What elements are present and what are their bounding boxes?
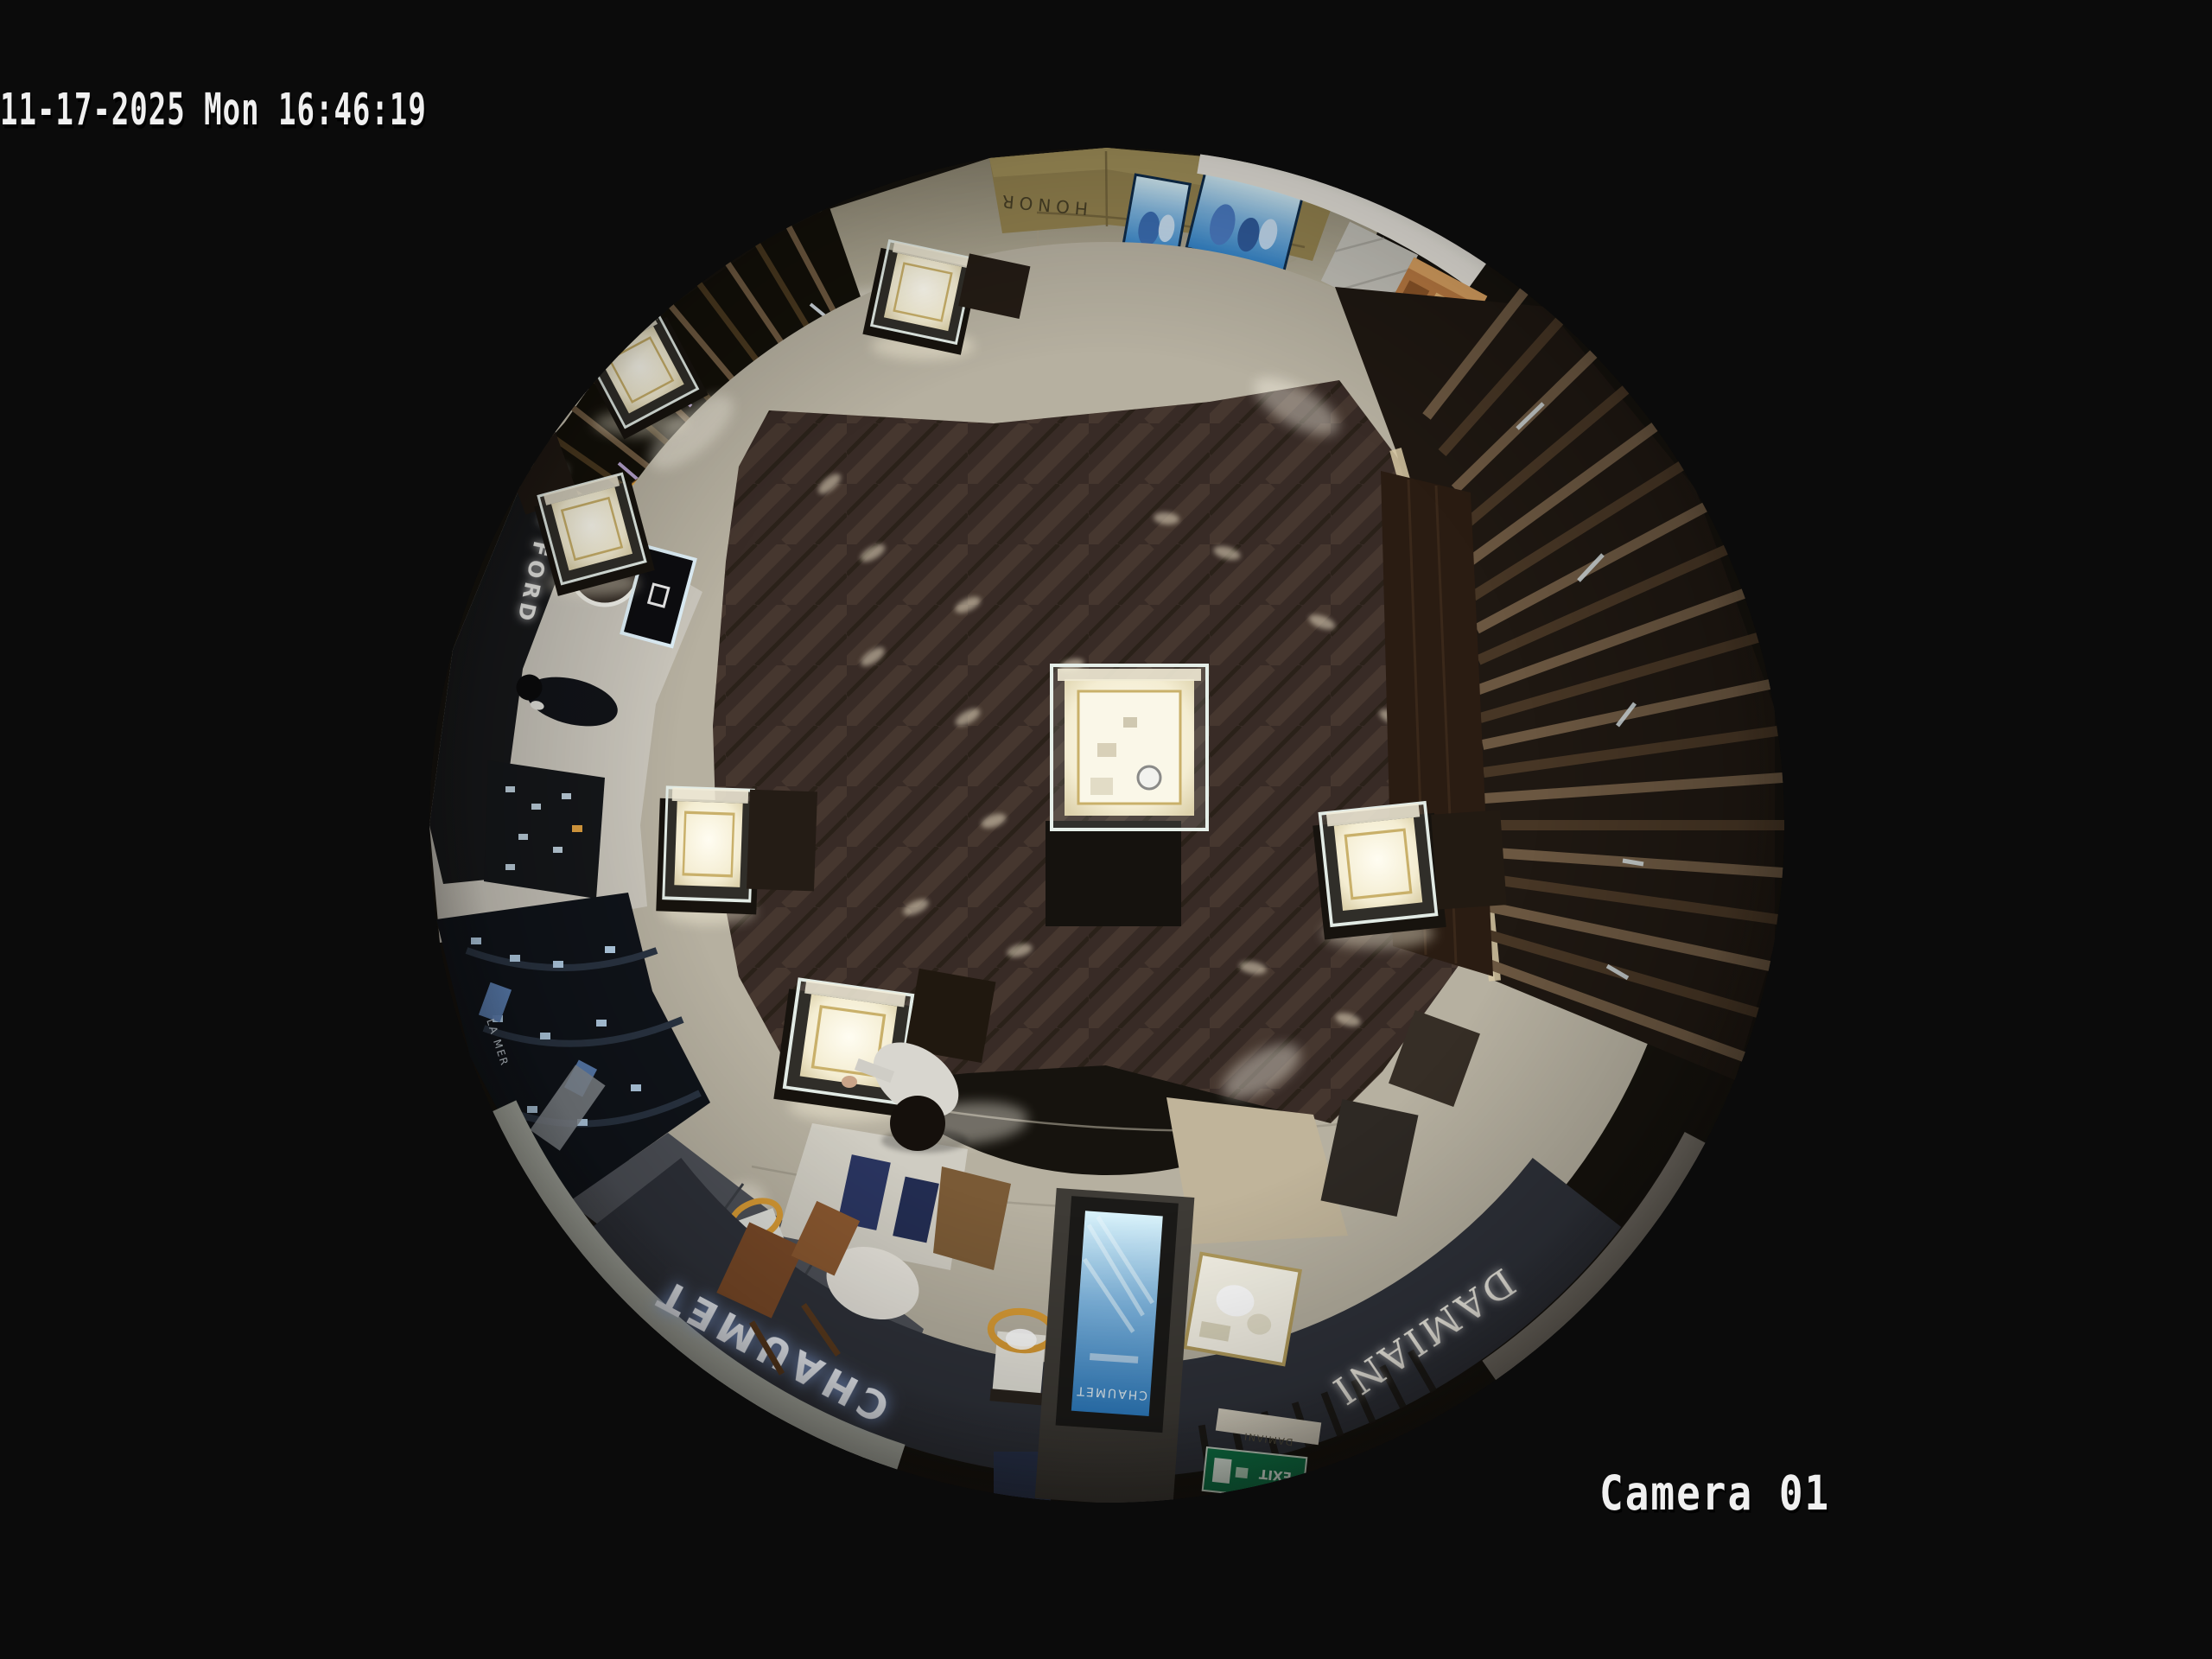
lens-vignette xyxy=(429,148,1784,1503)
timestamp-overlay: 11-17-2025 Mon 16:46:19 xyxy=(0,88,427,132)
fisheye-view: HONOR xyxy=(0,0,2212,1659)
camera-label: Camera 01 xyxy=(1599,1469,1830,1516)
cctv-frame: HONOR xyxy=(0,0,2212,1659)
